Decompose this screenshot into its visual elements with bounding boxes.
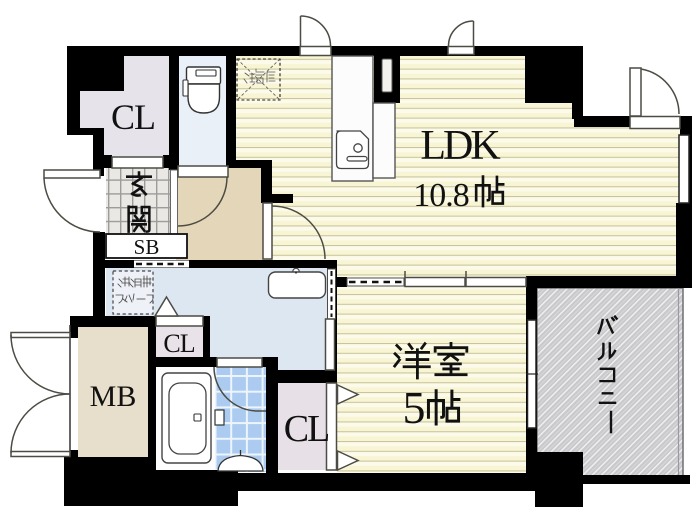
svg-text:CL: CL	[163, 329, 194, 358]
svg-text:LDK: LDK	[420, 123, 500, 169]
svg-text:10.8: 10.8	[413, 177, 469, 214]
svg-text:CL: CL	[284, 408, 329, 450]
svg-text:CL: CL	[111, 97, 155, 137]
svg-text:MB: MB	[90, 380, 137, 413]
svg-text:5: 5	[403, 382, 426, 433]
svg-text:SB: SB	[134, 235, 160, 259]
